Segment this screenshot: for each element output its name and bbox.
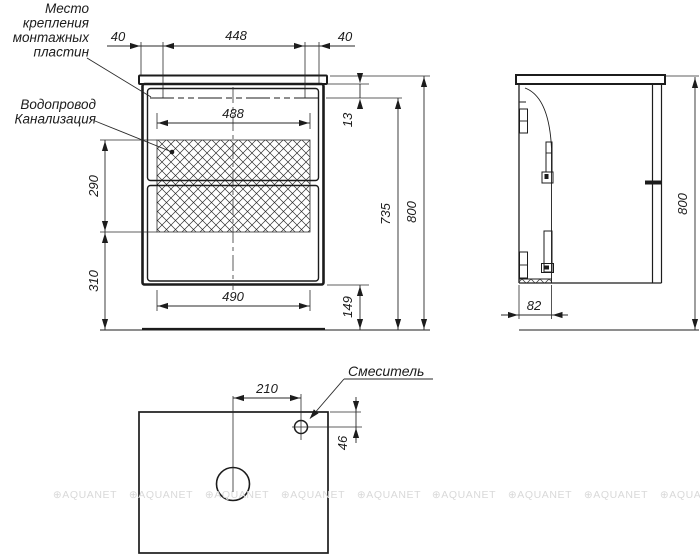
dim-offset-left: 40 (111, 29, 126, 44)
watermark: ⊕AQUANET (508, 489, 572, 501)
watermark: ⊕AQUANET (281, 489, 345, 501)
rail-foot-upper-block (545, 174, 549, 179)
dim-drawer-inner-width: 490 (222, 289, 244, 304)
dim-offset-right: 40 (338, 29, 353, 44)
top-arrows (235, 398, 357, 440)
technical-drawing: 40 448 40 488 13 735 800 149 290 310 490… (0, 0, 700, 558)
watermark: ⊕AQUANET (432, 489, 496, 501)
dim-plate-span: 448 (225, 28, 247, 43)
drawing-canvas: 40 448 40 488 13 735 800 149 290 310 490… (0, 0, 700, 558)
bottom-panel-hatch (519, 279, 552, 283)
watermark: ⊕AQUANET (357, 489, 421, 501)
dim-inner-width: 488 (222, 106, 244, 121)
mounting-label-line4: пластин (34, 45, 90, 60)
watermark: ⊕AQUANET (129, 489, 193, 501)
countertop-side (516, 75, 665, 84)
side-view (516, 75, 665, 283)
pipe-clearance-arc (525, 88, 552, 148)
mounting-plates-label: Место крепления монтажных пластин (13, 1, 90, 60)
plumbing-leader-dot (170, 150, 175, 155)
dim-total-height-front: 800 (404, 200, 419, 222)
rail-foot-lower-block (544, 266, 549, 270)
mounting-label-line1: Место (45, 1, 89, 16)
side-arrows (507, 79, 695, 329)
dim-lower-zone-height: 310 (86, 269, 101, 291)
dim-bottom-clearance: 149 (340, 296, 355, 318)
dim-faucet-offset-y: 46 (335, 435, 350, 450)
watermark: ⊕AQUANET (660, 489, 700, 501)
dim-plate-to-floor: 735 (378, 202, 393, 224)
plumbing-label: Водопровод Канализация (15, 97, 97, 127)
mounting-label-line2: крепления (23, 16, 89, 31)
dim-total-height-side: 800 (675, 192, 690, 214)
watermark: ⊕AQUANET (53, 489, 117, 501)
dim-faucet-offset-x: 210 (255, 381, 278, 396)
dim-plate-drop: 13 (340, 112, 355, 127)
plumbing-leader-line (95, 121, 172, 152)
side-dimension-lines (501, 77, 695, 330)
watermark: ⊕AQUANET (584, 489, 648, 501)
drawer-seam-side (645, 181, 662, 185)
watermark: ⊕AQUANET (205, 489, 269, 501)
plumbing-label-line2: Канализация (15, 112, 96, 127)
plumbing-label-line1: Водопровод (20, 97, 96, 112)
dim-back-zone-depth: 82 (527, 298, 542, 313)
faucet-label: Смеситель (348, 363, 424, 379)
dim-hatch-zone-height: 290 (86, 174, 101, 197)
mounting-label-line3: монтажных (13, 30, 90, 45)
top-view (139, 394, 362, 553)
watermark-row: ⊕AQUANET ⊕AQUANET ⊕AQUANET ⊕AQUANET ⊕AQU… (53, 489, 700, 501)
